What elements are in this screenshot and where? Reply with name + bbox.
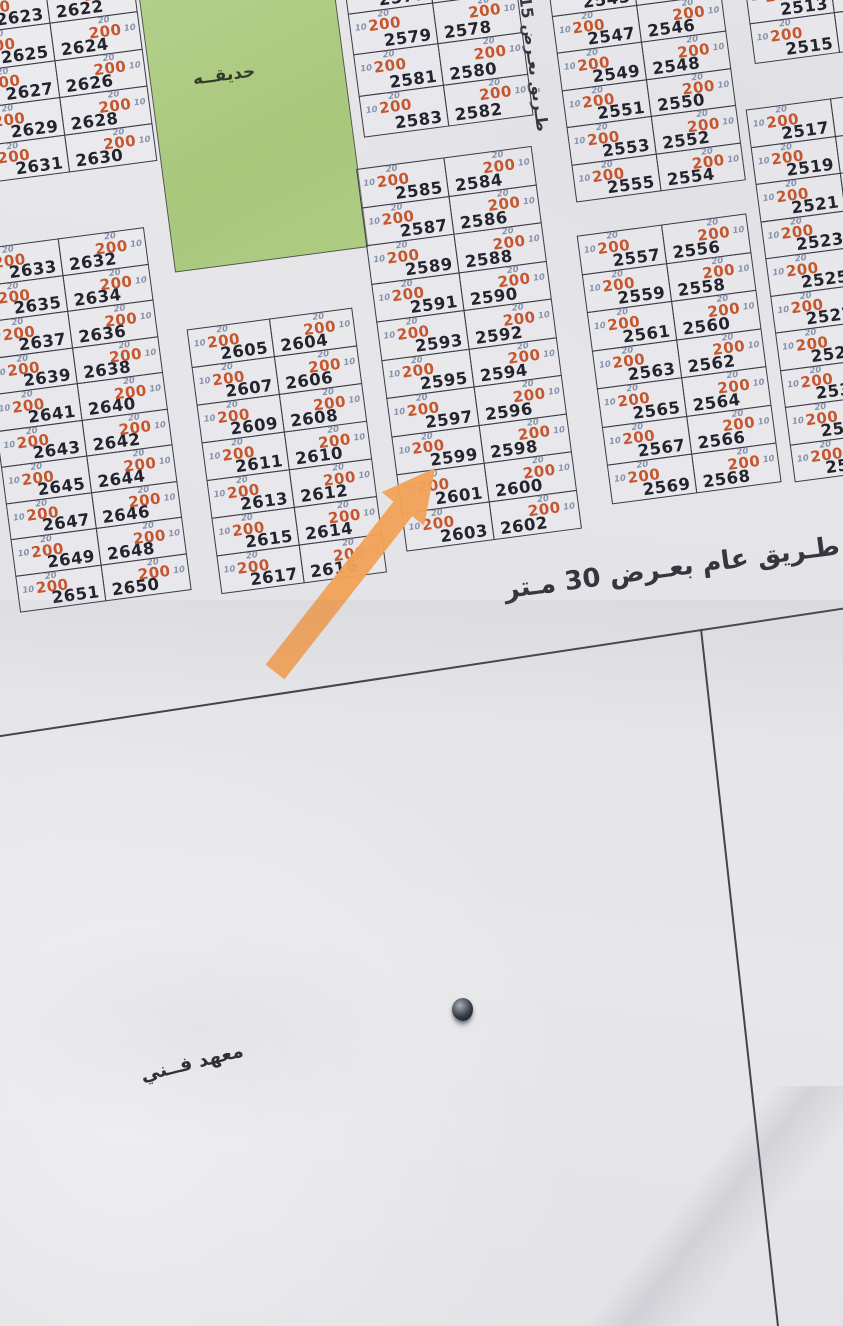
width-label: 10 bbox=[584, 245, 596, 255]
width-label: 10 bbox=[527, 235, 539, 245]
width-label: 10 bbox=[368, 217, 380, 227]
width-label: 10 bbox=[355, 23, 367, 33]
width-label: 10 bbox=[712, 43, 724, 53]
width-label: 10 bbox=[0, 368, 6, 378]
park-area: حديقــه bbox=[137, 0, 368, 272]
width-label: 10 bbox=[198, 377, 210, 387]
depth-label: 20 bbox=[775, 105, 787, 115]
width-label: 10 bbox=[547, 387, 559, 397]
depth-label: 20 bbox=[581, 11, 593, 21]
width-label: 10 bbox=[130, 240, 142, 250]
depth-label: 20 bbox=[631, 422, 643, 432]
depth-label: 20 bbox=[502, 227, 514, 237]
width-label: 10 bbox=[589, 284, 601, 294]
depth-label: 20 bbox=[137, 485, 149, 495]
depth-label: 20 bbox=[226, 400, 238, 410]
depth-label: 20 bbox=[147, 558, 159, 568]
area-stack: 20200 bbox=[477, 77, 512, 104]
depth-label: 20 bbox=[112, 127, 124, 137]
width-label: 10 bbox=[559, 25, 571, 35]
width-label: 10 bbox=[756, 33, 768, 43]
depth-label: 20 bbox=[686, 35, 698, 45]
plot-number: 2554 bbox=[666, 166, 716, 190]
pin-object bbox=[452, 998, 473, 1021]
width-label: 10 bbox=[503, 3, 515, 13]
depth-label: 20 bbox=[0, 67, 9, 77]
depth-label: 20 bbox=[497, 189, 509, 199]
depth-label: 20 bbox=[601, 160, 613, 170]
plot-number: 2555 bbox=[606, 173, 656, 197]
depth-label: 20 bbox=[113, 304, 125, 314]
plot-number: 2631 bbox=[15, 154, 65, 178]
depth-label: 20 bbox=[383, 50, 395, 60]
width-label: 10 bbox=[158, 457, 170, 467]
depth-label: 20 bbox=[785, 179, 797, 189]
width-label: 10 bbox=[747, 340, 759, 350]
depth-label: 20 bbox=[216, 325, 228, 335]
institute-label: معهد فــني bbox=[138, 1040, 245, 1087]
width-label: 10 bbox=[537, 311, 549, 321]
width-label: 10 bbox=[17, 549, 29, 559]
width-label: 10 bbox=[144, 348, 156, 358]
width-label: 10 bbox=[193, 339, 205, 349]
depth-label: 20 bbox=[21, 390, 33, 400]
depth-label: 20 bbox=[31, 462, 43, 472]
width-label: 10 bbox=[522, 196, 534, 206]
depth-label: 20 bbox=[706, 218, 718, 228]
width-label: 10 bbox=[139, 312, 151, 322]
plot-number: 2650 bbox=[111, 575, 161, 599]
width-label: 10 bbox=[13, 513, 25, 523]
width-label: 10 bbox=[203, 414, 215, 424]
depth-label: 20 bbox=[517, 341, 529, 351]
plot-dimensions: 2020010 bbox=[472, 34, 521, 62]
depth-label: 20 bbox=[118, 340, 130, 350]
depth-label: 20 bbox=[537, 494, 549, 504]
width-label: 10 bbox=[604, 398, 616, 408]
depth-label: 20 bbox=[810, 365, 822, 375]
width-label: 10 bbox=[772, 268, 784, 278]
width-label: 10 bbox=[562, 502, 574, 512]
width-label: 10 bbox=[753, 119, 765, 129]
width-label: 10 bbox=[599, 360, 611, 370]
depth-label: 20 bbox=[780, 142, 792, 152]
road-30m-label: طـريق عام بعـرض 30 مـتر bbox=[502, 531, 841, 605]
depth-label: 20 bbox=[726, 371, 738, 381]
width-label: 10 bbox=[542, 349, 554, 359]
plot-dimensions: 2020010 bbox=[467, 0, 516, 21]
width-label: 10 bbox=[133, 98, 145, 108]
depth-label: 20 bbox=[626, 384, 638, 394]
plot-number: 2630 bbox=[75, 147, 125, 171]
plot-dimensions: 2020010 bbox=[477, 75, 526, 103]
width-label: 10 bbox=[338, 320, 350, 330]
depth-label: 20 bbox=[16, 354, 28, 364]
width-label: 10 bbox=[787, 379, 799, 389]
depth-label: 20 bbox=[814, 403, 826, 413]
depth-label: 20 bbox=[11, 318, 23, 328]
width-label: 10 bbox=[149, 384, 161, 394]
depth-label: 20 bbox=[736, 447, 748, 457]
plot-block-D: 1020200257720200102576102020025792020010… bbox=[342, 0, 536, 140]
depth-label: 20 bbox=[532, 456, 544, 466]
width-label: 10 bbox=[707, 6, 719, 16]
depth-label: 20 bbox=[327, 425, 339, 435]
plot-number: 2569 bbox=[642, 475, 692, 499]
depth-label: 20 bbox=[45, 571, 57, 581]
width-label: 10 bbox=[138, 135, 150, 145]
width-label: 10 bbox=[508, 44, 520, 54]
width-label: 10 bbox=[767, 231, 779, 241]
depth-label: 20 bbox=[691, 72, 703, 82]
depth-label: 20 bbox=[7, 281, 19, 291]
width-label: 10 bbox=[363, 179, 375, 189]
depth-label: 20 bbox=[779, 19, 791, 29]
depth-label: 20 bbox=[317, 350, 329, 360]
depth-label: 20 bbox=[123, 377, 135, 387]
depth-label: 20 bbox=[636, 460, 648, 470]
plot-number: 2583 bbox=[394, 109, 444, 133]
width-label: 10 bbox=[792, 417, 804, 427]
depth-label: 20 bbox=[0, 30, 4, 40]
plot-block-H1: 1020200251310202002515 bbox=[744, 0, 843, 66]
depth-label: 20 bbox=[488, 78, 500, 88]
width-label: 10 bbox=[348, 395, 360, 405]
plot-number: 2568 bbox=[702, 467, 752, 491]
depth-label: 20 bbox=[800, 291, 812, 301]
width-label: 10 bbox=[752, 379, 764, 389]
depth-label: 20 bbox=[391, 203, 403, 213]
depth-label: 20 bbox=[681, 0, 693, 8]
depth-label: 20 bbox=[221, 363, 233, 373]
plot-cell: 10202002631 bbox=[0, 134, 71, 184]
depth-label: 20 bbox=[483, 37, 495, 47]
plot-number: 2651 bbox=[51, 583, 101, 607]
depth-label: 20 bbox=[128, 413, 140, 423]
depth-label: 20 bbox=[596, 123, 608, 133]
width-label: 10 bbox=[514, 86, 526, 96]
depth-label: 20 bbox=[616, 308, 628, 318]
width-label: 10 bbox=[757, 417, 769, 427]
depth-label: 20 bbox=[26, 426, 38, 436]
width-label: 10 bbox=[393, 408, 405, 418]
width-label: 10 bbox=[564, 62, 576, 72]
depth-label: 20 bbox=[696, 110, 708, 120]
plot-number: 2602 bbox=[499, 514, 549, 538]
width-label: 10 bbox=[3, 440, 15, 450]
depth-label: 20 bbox=[507, 265, 519, 275]
depth-label: 20 bbox=[312, 312, 324, 322]
width-label: 10 bbox=[218, 527, 230, 537]
width-label: 10 bbox=[0, 332, 1, 342]
depth-label: 20 bbox=[611, 269, 623, 279]
depth-label: 20 bbox=[731, 409, 743, 419]
width-label: 10 bbox=[552, 425, 564, 435]
depth-label: 20 bbox=[377, 9, 389, 19]
width-label: 10 bbox=[223, 565, 235, 575]
width-label: 10 bbox=[0, 404, 10, 414]
width-label: 10 bbox=[128, 61, 140, 71]
width-label: 10 bbox=[609, 436, 621, 446]
depth-label: 20 bbox=[107, 90, 119, 100]
width-label: 10 bbox=[757, 156, 769, 166]
depth-label: 20 bbox=[527, 418, 539, 428]
width-label: 10 bbox=[360, 64, 372, 74]
width-label: 10 bbox=[153, 421, 165, 431]
cadastral-map-photo: حديقــه طـريق بعـرض 15 طـريق عام بعـرض 3… bbox=[0, 0, 843, 1326]
width-label: 10 bbox=[134, 276, 146, 286]
depth-label: 20 bbox=[805, 328, 817, 338]
width-label: 10 bbox=[594, 322, 606, 332]
arrow-shape bbox=[266, 468, 435, 679]
plot-block-A: 1020200262120200102620102020026232020010… bbox=[0, 0, 160, 186]
width-label: 10 bbox=[383, 331, 395, 341]
depth-label: 20 bbox=[103, 53, 115, 63]
depth-label: 20 bbox=[98, 16, 110, 26]
width-label: 10 bbox=[532, 273, 544, 283]
width-label: 10 bbox=[172, 565, 184, 575]
width-label: 10 bbox=[373, 255, 385, 265]
plot-block-G: 1020200255720200102556102020025592020010… bbox=[577, 213, 784, 506]
depth-label: 20 bbox=[591, 85, 603, 95]
depth-label: 20 bbox=[721, 333, 733, 343]
depth-label: 20 bbox=[386, 164, 398, 174]
depth-label: 20 bbox=[40, 535, 52, 545]
paper-crease-shadow bbox=[553, 1086, 843, 1326]
depth-label: 20 bbox=[236, 476, 248, 486]
area-stack: 20200 bbox=[472, 35, 507, 62]
width-label: 10 bbox=[343, 358, 355, 368]
width-label: 10 bbox=[717, 80, 729, 90]
depth-label: 20 bbox=[606, 231, 618, 241]
width-label: 10 bbox=[762, 194, 774, 204]
depth-label: 20 bbox=[388, 91, 400, 101]
width-label: 10 bbox=[614, 474, 626, 484]
width-label: 10 bbox=[737, 264, 749, 274]
depth-label: 20 bbox=[819, 440, 831, 450]
depth-label: 20 bbox=[621, 346, 633, 356]
depth-label: 20 bbox=[231, 438, 243, 448]
width-label: 10 bbox=[578, 174, 590, 184]
depth-label: 20 bbox=[492, 151, 504, 161]
depth-label: 20 bbox=[512, 303, 524, 313]
width-label: 10 bbox=[742, 302, 754, 312]
width-label: 10 bbox=[573, 137, 585, 147]
width-label: 10 bbox=[726, 154, 738, 164]
depth-label: 20 bbox=[795, 254, 807, 264]
depth-label: 20 bbox=[411, 355, 423, 365]
park-label: حديقــه bbox=[192, 61, 257, 89]
depth-label: 20 bbox=[406, 317, 418, 327]
depth-label: 20 bbox=[790, 217, 802, 227]
plot-block-F: 1020200254520200102544102020025472020010… bbox=[547, 0, 748, 204]
width-label: 10 bbox=[782, 342, 794, 352]
width-label: 10 bbox=[168, 529, 180, 539]
width-label: 10 bbox=[365, 105, 377, 115]
plot-number: 2515 bbox=[785, 35, 835, 59]
depth-label: 20 bbox=[586, 48, 598, 58]
highlight-arrow bbox=[250, 440, 460, 700]
width-label: 10 bbox=[8, 476, 20, 486]
depth-label: 20 bbox=[416, 394, 428, 404]
depth-label: 20 bbox=[477, 0, 489, 6]
depth-label: 20 bbox=[2, 245, 14, 255]
depth-label: 20 bbox=[711, 256, 723, 266]
plot-block-B: 1020200263320200102632102020026352020010… bbox=[0, 227, 194, 615]
width-label: 10 bbox=[557, 464, 569, 474]
depth-label: 20 bbox=[396, 241, 408, 251]
depth-label: 20 bbox=[322, 388, 334, 398]
width-label: 10 bbox=[208, 452, 220, 462]
depth-label: 20 bbox=[104, 232, 116, 242]
width-label: 10 bbox=[762, 455, 774, 465]
depth-label: 20 bbox=[133, 449, 145, 459]
depth-label: 20 bbox=[401, 279, 413, 289]
depth-label: 20 bbox=[701, 147, 713, 157]
depth-label: 20 bbox=[522, 380, 534, 390]
width-label: 10 bbox=[797, 454, 809, 464]
width-label: 10 bbox=[123, 24, 135, 34]
width-label: 10 bbox=[568, 100, 580, 110]
depth-label: 20 bbox=[6, 141, 18, 151]
width-label: 10 bbox=[517, 158, 529, 168]
depth-label: 20 bbox=[109, 268, 121, 278]
width-label: 10 bbox=[388, 369, 400, 379]
plot-number: 2582 bbox=[454, 101, 504, 125]
depth-label: 20 bbox=[2, 104, 14, 114]
width-label: 10 bbox=[213, 490, 225, 500]
width-label: 10 bbox=[777, 305, 789, 315]
width-label: 10 bbox=[732, 226, 744, 236]
depth-label: 20 bbox=[142, 521, 154, 531]
depth-label: 20 bbox=[35, 499, 47, 509]
width-label: 10 bbox=[163, 493, 175, 503]
depth-label: 20 bbox=[716, 294, 728, 304]
width-label: 10 bbox=[722, 117, 734, 127]
width-label: 10 bbox=[378, 293, 390, 303]
width-label: 10 bbox=[22, 585, 34, 595]
width-label: 10 bbox=[751, 0, 763, 3]
